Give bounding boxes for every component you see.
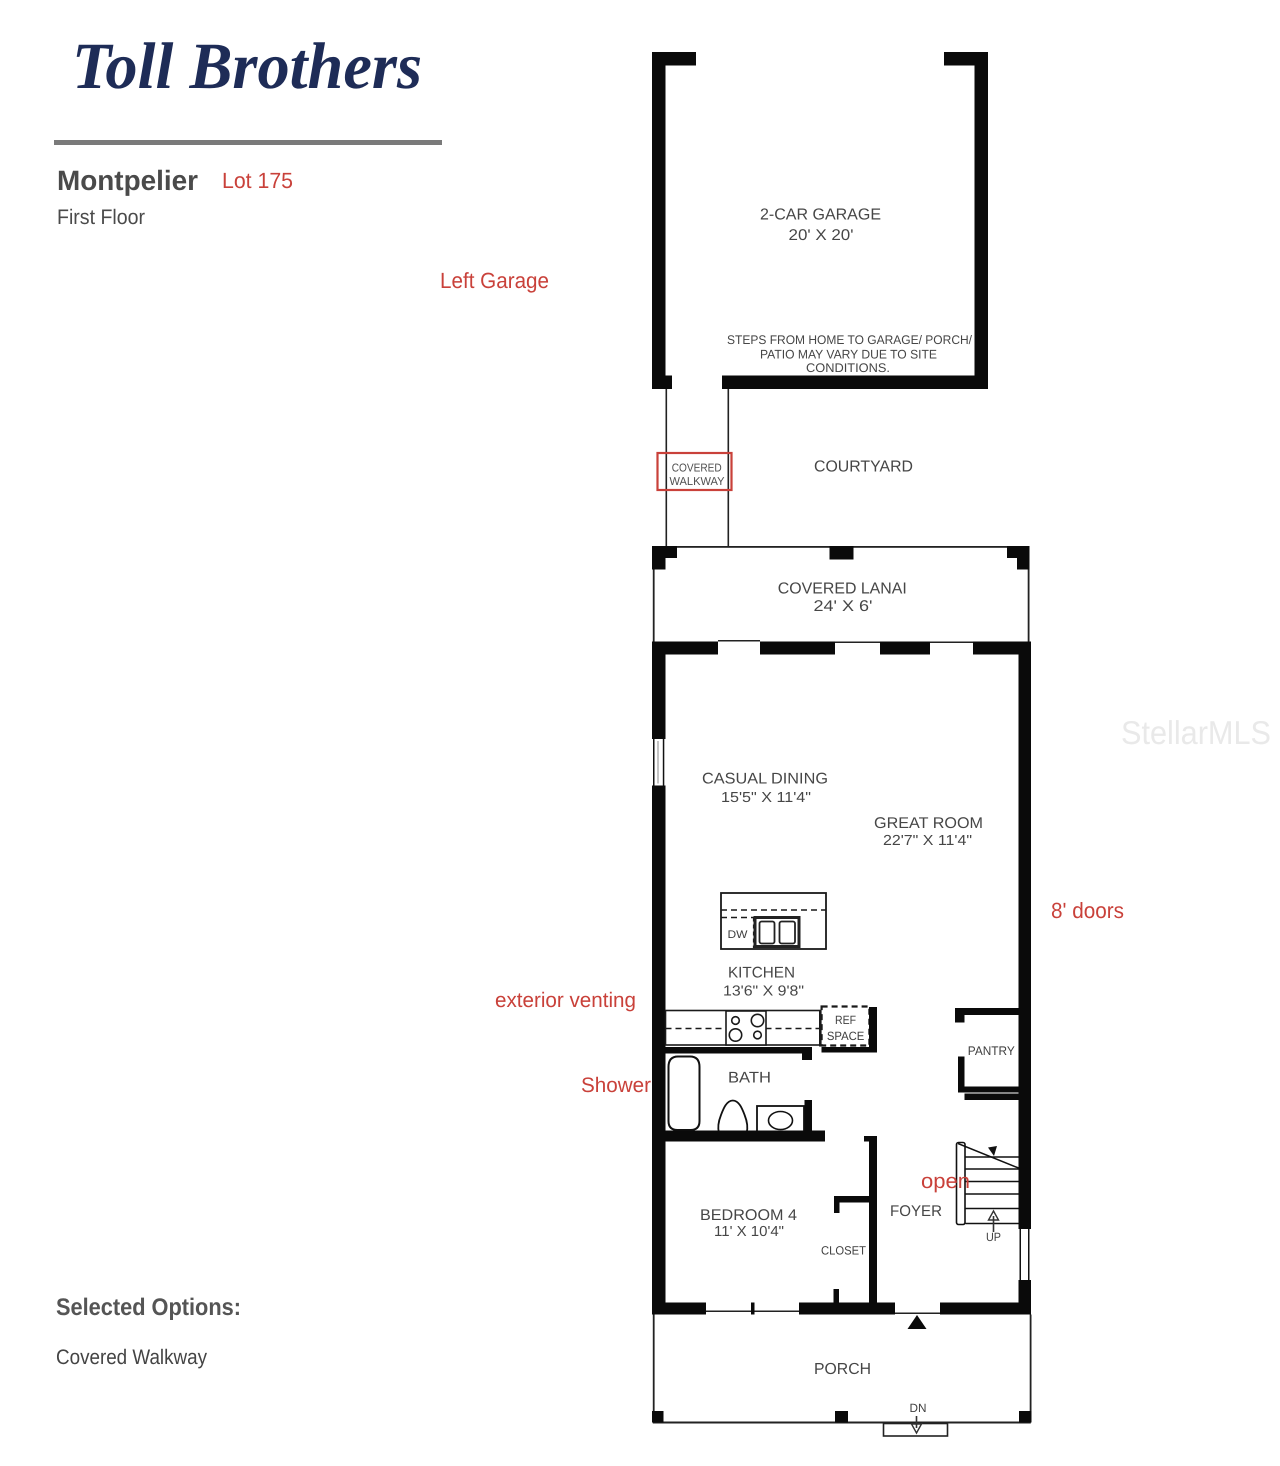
svg-text:PORCH: PORCH xyxy=(814,1361,871,1378)
svg-text:SPACE: SPACE xyxy=(827,1029,865,1043)
svg-text:CASUAL DINING: CASUAL DINING xyxy=(702,771,828,788)
svg-text:Lot 175: Lot 175 xyxy=(222,168,293,193)
svg-text:PANTRY: PANTRY xyxy=(968,1044,1016,1058)
svg-text:20' X 20': 20' X 20' xyxy=(789,227,854,244)
svg-text:FOYER: FOYER xyxy=(890,1203,942,1220)
svg-text:REF: REF xyxy=(835,1013,856,1027)
svg-text:Montpelier: Montpelier xyxy=(57,165,198,196)
svg-text:15'5" X 11'4": 15'5" X 11'4" xyxy=(721,790,811,806)
svg-text:UP: UP xyxy=(986,1230,1001,1244)
svg-text:Covered Walkway: Covered Walkway xyxy=(56,1346,207,1369)
svg-text:PATIO MAY VARY DUE TO SITE: PATIO MAY VARY DUE TO SITE xyxy=(760,348,937,362)
svg-text:StellarMLS: StellarMLS xyxy=(1121,714,1271,751)
svg-text:Selected Options:: Selected Options: xyxy=(56,1294,241,1321)
svg-text:11' X 10'4": 11' X 10'4" xyxy=(714,1224,784,1240)
svg-text:BEDROOM 4: BEDROOM 4 xyxy=(700,1207,797,1224)
svg-text:open: open xyxy=(921,1170,970,1193)
svg-text:exterior venting: exterior venting xyxy=(495,989,636,1012)
svg-text:STEPS FROM HOME TO GARAGE/ POR: STEPS FROM HOME TO GARAGE/ PORCH/ xyxy=(727,333,972,347)
svg-text:WALKWAY: WALKWAY xyxy=(670,476,725,488)
svg-text:2-CAR GARAGE: 2-CAR GARAGE xyxy=(760,207,881,224)
svg-text:COVERED LANAI: COVERED LANAI xyxy=(778,581,907,598)
svg-text:COURTYARD: COURTYARD xyxy=(814,459,913,476)
svg-text:CLOSET: CLOSET xyxy=(821,1244,867,1258)
svg-text:GREAT ROOM: GREAT ROOM xyxy=(874,815,983,832)
svg-text:First Floor: First Floor xyxy=(57,206,145,229)
svg-text:DW: DW xyxy=(728,929,749,941)
svg-text:13'6" X 9'8": 13'6" X 9'8" xyxy=(723,984,804,1000)
svg-text:24' X 6': 24' X 6' xyxy=(814,598,873,615)
svg-text:Left Garage: Left Garage xyxy=(440,268,549,293)
svg-text:DN: DN xyxy=(910,1401,927,1415)
svg-text:22'7" X 11'4": 22'7" X 11'4" xyxy=(883,833,972,849)
svg-text:CONDITIONS.: CONDITIONS. xyxy=(806,361,890,375)
svg-text:KITCHEN: KITCHEN xyxy=(728,965,795,982)
svg-text:8' doors: 8' doors xyxy=(1051,898,1124,923)
svg-text:BATH: BATH xyxy=(728,1070,771,1087)
svg-text:COVERED: COVERED xyxy=(672,463,722,475)
svg-text:Shower: Shower xyxy=(581,1074,651,1097)
svg-text:Toll Brothers: Toll Brothers xyxy=(72,30,422,103)
